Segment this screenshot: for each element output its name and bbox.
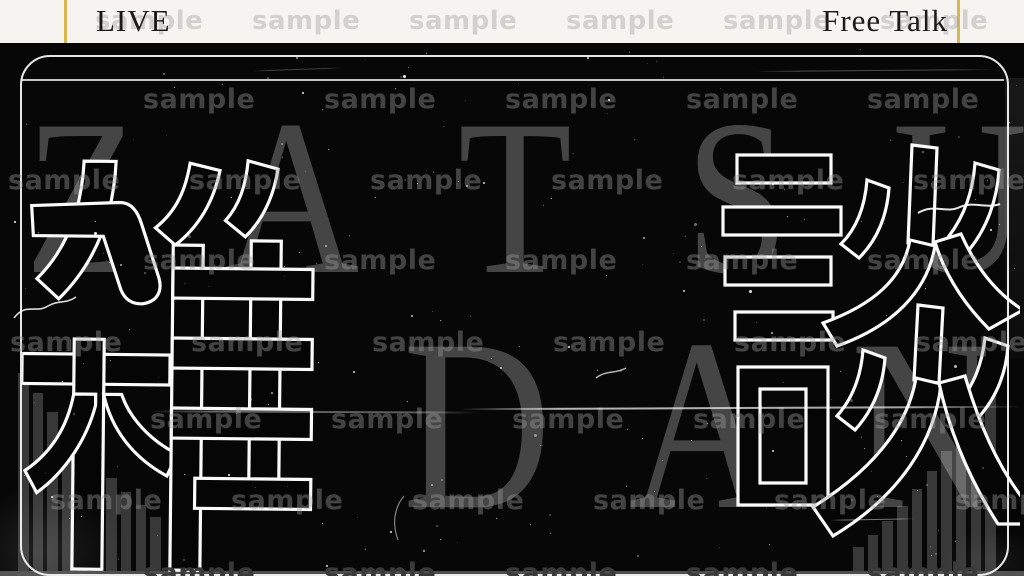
frame-header-divider [21,79,1004,81]
frame-border [20,55,1009,576]
live-label: LIVE [96,5,171,36]
accent-line-right [957,0,960,43]
free-talk-label: Free Talk [822,5,948,36]
accent-line-left [64,0,67,43]
stream-overlay: ZATSUDAN [0,0,1024,576]
